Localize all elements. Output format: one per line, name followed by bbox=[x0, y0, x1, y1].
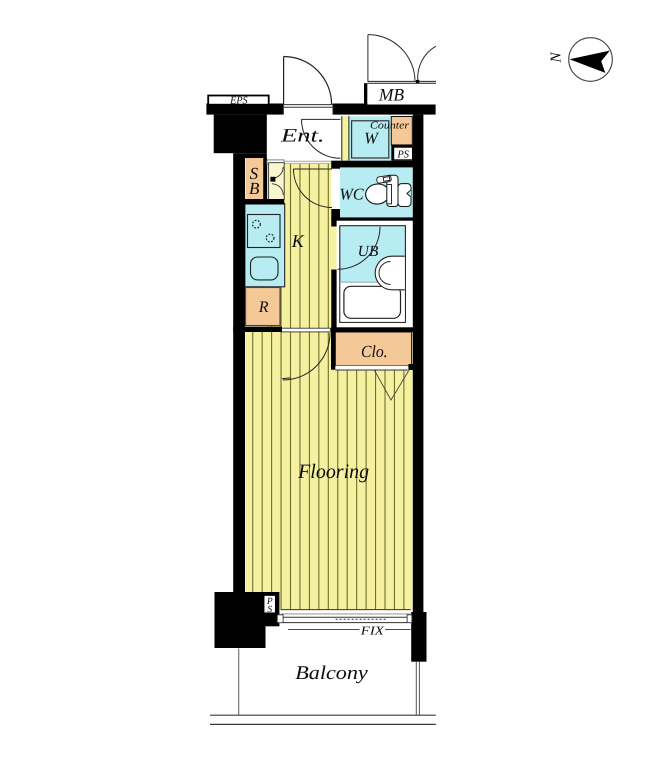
svg-text:K: K bbox=[291, 231, 305, 251]
svg-text:Counter: Counter bbox=[370, 121, 410, 132]
svg-text:PS: PS bbox=[396, 150, 409, 161]
svg-text:FIX: FIX bbox=[360, 624, 385, 638]
svg-text:S: S bbox=[267, 605, 272, 615]
svg-text:Balcony: Balcony bbox=[295, 663, 368, 684]
svg-text:R: R bbox=[258, 299, 269, 316]
svg-text:N: N bbox=[549, 52, 565, 64]
svg-text:WC: WC bbox=[340, 185, 365, 204]
svg-text:Clo.: Clo. bbox=[361, 342, 388, 361]
svg-text:MB: MB bbox=[378, 85, 405, 105]
svg-text:Flooring: Flooring bbox=[297, 461, 369, 483]
svg-text:EPS: EPS bbox=[229, 96, 248, 107]
svg-text:B: B bbox=[249, 179, 260, 198]
